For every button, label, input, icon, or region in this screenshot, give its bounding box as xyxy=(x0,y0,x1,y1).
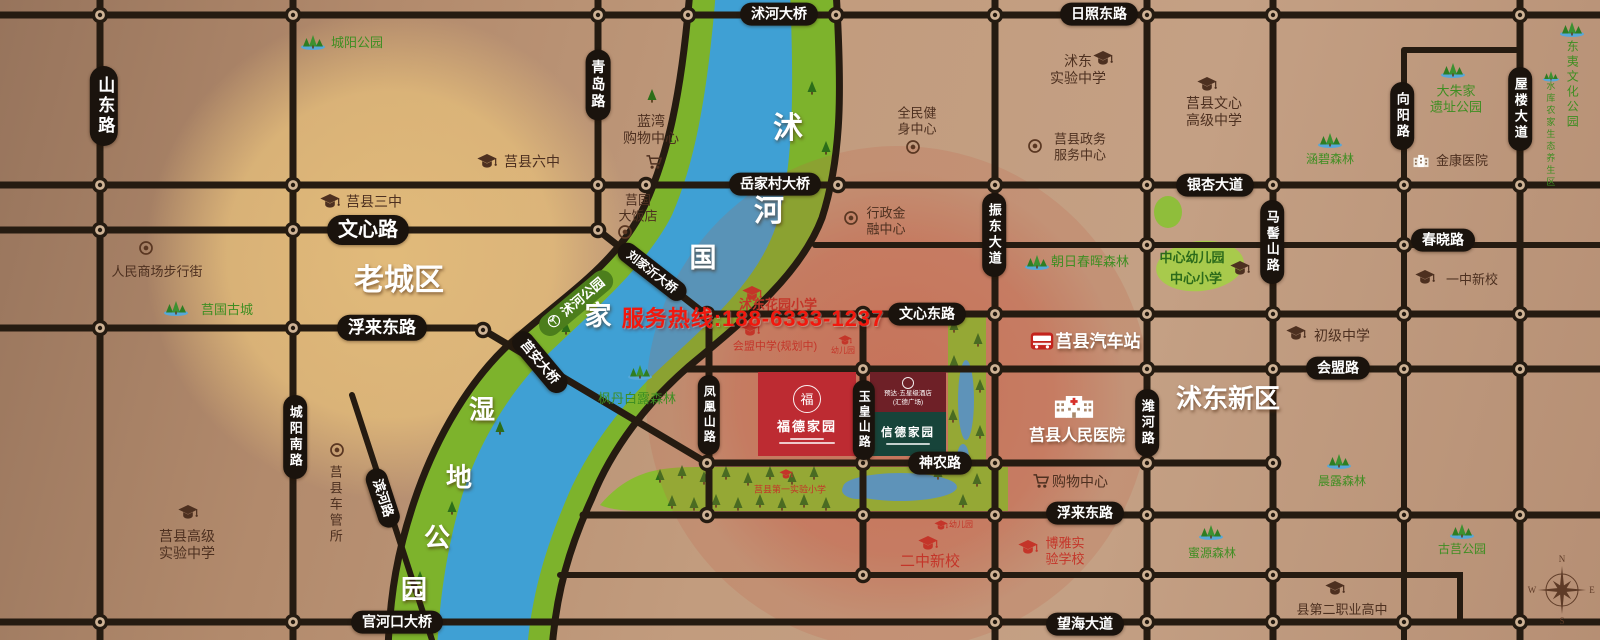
hanbi-forest-label-line0: 涵碧森林 xyxy=(1306,152,1354,166)
yizhong-new-campus-icon xyxy=(1415,269,1436,285)
vehicle-admin-office-label-line0: 莒县车管所 xyxy=(327,465,343,545)
chengyang-park-label-line0: 城阳公园 xyxy=(331,35,383,51)
south-mall-label: 购物中心 xyxy=(1052,474,1108,491)
road-label-huimeng-road: 会盟路 xyxy=(1306,357,1370,380)
road-label-huimeng-road-text: 会盟路 xyxy=(1317,360,1359,376)
kindergarten-south-label-line0: 幼儿园 xyxy=(949,520,973,530)
lanwan-mall-cart-icon xyxy=(646,154,663,170)
shudong-new-district-label-line0: 沭东新区 xyxy=(1176,383,1280,414)
boya-exp-school-label-line1: 验学校 xyxy=(1045,551,1084,567)
juguo-old-city-icon xyxy=(162,300,190,317)
yizhong-new-campus-label-line0: 一中新校 xyxy=(1446,272,1498,288)
road-label-chunxiao-road: 春晓路 xyxy=(1411,229,1475,252)
road-label-qingdao-road: 青岛路 xyxy=(586,50,611,121)
river-char-shu: 沭 xyxy=(773,111,803,147)
road-label-wanghai-avenue: 望海大道 xyxy=(1046,613,1124,636)
dazhujia-ruins-park-label: 大朱家遗址公园 xyxy=(1430,83,1482,114)
wenxin-high-school-icon xyxy=(1197,76,1218,92)
juxian-senior-exp-school-label: 莒县高级实验中学 xyxy=(159,528,215,562)
road-label-weihe-road-text: 潍河路 xyxy=(1140,399,1155,447)
people-hospital-label-line0: 莒县人民医院 xyxy=(1029,426,1125,445)
jinkang-hospital-icon xyxy=(1413,154,1430,168)
no2-vocational-school-label-line0: 县第二职业高中 xyxy=(1296,602,1387,618)
road-label-rizhao-east-road: 日照东路 xyxy=(1060,3,1138,26)
fengdan-forest-label-line0: 枫丹白露森林 xyxy=(598,391,676,407)
juxian-no6-school-icon xyxy=(477,153,498,169)
admin-finance-center-icon xyxy=(844,211,859,226)
wenxin-high-school-label-line0: 莒县文心 xyxy=(1186,95,1242,112)
bridge-label-shuhe: 沭河大桥 xyxy=(740,3,818,26)
fengdan-forest-icon xyxy=(626,364,654,381)
first-exp-primary-label: 莒县第一实验小学 xyxy=(754,485,826,496)
bridge-label-yuejiacun: 岳家村大桥 xyxy=(729,173,821,196)
river-char-jia: 家 xyxy=(585,300,612,332)
bridge-label-guanhekou-text: 官河口大桥 xyxy=(362,614,432,630)
road-label-majishan-road: 马髻山路 xyxy=(1260,200,1284,284)
chengyang-park-icon xyxy=(299,34,327,51)
old-town-area-label-line0: 老城区 xyxy=(354,263,444,299)
vehicle-admin-office-label: 莒县车管所 xyxy=(327,465,343,545)
junior-middle-school-label: 初级中学 xyxy=(1314,328,1370,345)
govt-service-center-label-line0: 莒县政务 xyxy=(1054,131,1106,147)
dazhujia-ruins-park-label-line1: 遗址公园 xyxy=(1430,99,1482,115)
road-label-shennong-road: 神农路 xyxy=(908,452,972,475)
bus-station-label-line0: 莒县汽车站 xyxy=(1056,332,1141,352)
river-char-di-line0: 地 xyxy=(446,462,472,493)
river-char-shi-line0: 湿 xyxy=(469,394,495,425)
wenxin-high-school-label-line1: 高级中学 xyxy=(1186,112,1242,129)
road-label-chengyang-south-road-text: 城阳南路 xyxy=(288,405,303,469)
shudong-exp-school-icon xyxy=(1093,50,1114,66)
fitness-center-label: 全民健身中心 xyxy=(897,105,936,136)
erzhong-new-campus-label: 二中新校 xyxy=(900,553,960,571)
kindergarten-north-label: 幼儿园 xyxy=(831,346,855,356)
road-label-wenxin-east-road: 文心东路 xyxy=(888,303,966,326)
juguo-hotel-label: 莒国大饭店 xyxy=(618,192,657,223)
road-label-weihe-road: 潍河路 xyxy=(1135,389,1159,457)
chenlu-forest-label-line0: 晨露森林 xyxy=(1318,474,1366,488)
central-school-cap-icon xyxy=(1230,260,1251,276)
river-char-he-line0: 河 xyxy=(754,194,784,230)
shudong-exp-school-label-line1: 实验中学 xyxy=(1050,70,1106,87)
road-label-fulai-east-road-east-text: 浮来东路 xyxy=(1057,505,1113,521)
miyuan-forest-label: 蜜源森林 xyxy=(1188,546,1236,560)
south-mall-cart-icon xyxy=(1033,473,1050,489)
road-label-yinxing-avenue: 银杏大道 xyxy=(1176,174,1254,197)
juxian-senior-exp-school-label-line1: 实验中学 xyxy=(159,545,215,562)
road-label-shandong-road: 山东路 xyxy=(90,66,118,146)
river-char-guo: 国 xyxy=(690,242,717,274)
road-label-yinxing-avenue-text: 银杏大道 xyxy=(1187,177,1243,193)
yizhong-new-campus-label: 一中新校 xyxy=(1446,272,1498,288)
kindergarten-north-label-line0: 幼儿园 xyxy=(831,346,855,356)
river-char-guo-line0: 国 xyxy=(690,242,717,274)
juxian-senior-exp-school-label-line0: 莒县高级 xyxy=(159,528,215,545)
bridge-label-juan-text: 莒安大桥 xyxy=(518,337,563,386)
road-label-fenghuangshan-road-text: 凤凰山路 xyxy=(702,385,716,445)
first-exp-primary-label-line0: 莒县第一实验小学 xyxy=(754,485,826,496)
road-label-shennong-road-text: 神农路 xyxy=(919,455,961,471)
dongyi-culture-park-label-line0: 东夷文化公园 xyxy=(1565,40,1579,130)
renmin-mall-icon xyxy=(139,241,154,256)
river-char-jia-line0: 家 xyxy=(585,300,612,332)
lanwan-mall-label-line1: 购物中心 xyxy=(623,130,679,147)
wenxin-high-school-label: 莒县文心高级中学 xyxy=(1186,95,1242,129)
erzhong-new-campus-label-line0: 二中新校 xyxy=(900,553,960,571)
juxian-no3-school-label-line0: 莒县三中 xyxy=(346,194,402,211)
central-kindergarten-label: 中心幼儿园 xyxy=(1159,250,1224,266)
guju-park-icon xyxy=(1448,523,1476,540)
road-label-yuhuangshan-road-text: 玉皇山路 xyxy=(857,390,871,450)
dazhujia-ruins-park-icon xyxy=(1439,62,1467,79)
road-label-fenghuangshan-road: 凤凰山路 xyxy=(698,375,720,455)
zhaori-forest-label: 朝日春晖森林 xyxy=(1051,254,1129,270)
bridge-label-shuhe-text: 沭河大桥 xyxy=(751,6,807,22)
road-label-wulou-avenue: 屋楼大道 xyxy=(1508,67,1532,151)
no2-vocational-school-icon xyxy=(1325,580,1346,596)
road-label-xiangyang-road: 向阳路 xyxy=(1390,82,1414,150)
fengdan-forest-label: 枫丹白露森林 xyxy=(598,391,676,407)
boya-exp-school-label: 博雅实验学校 xyxy=(1045,535,1084,566)
fitness-center-icon xyxy=(906,140,921,155)
juxian-no6-school-label: 莒县六中 xyxy=(504,154,560,171)
road-label-wenxin-road: 文心路 xyxy=(327,215,409,245)
bridge-label-yuejiacun-text: 岳家村大桥 xyxy=(740,176,810,192)
juxian-no6-school-label-line0: 莒县六中 xyxy=(504,154,560,171)
road-label-binhe-road-text: 滨河路 xyxy=(370,477,396,519)
bridge-label-liujiayi: 刘家沂大桥 xyxy=(613,239,690,306)
juguo-hotel-icon xyxy=(618,225,633,240)
road-label-chunxiao-road-text: 春晓路 xyxy=(1422,232,1464,248)
reservoir-farm-zone-label-line0: 水库农家生态养生区 xyxy=(1545,81,1556,189)
road-label-majishan-road-text: 马髻山路 xyxy=(1265,210,1280,274)
central-kindergarten-label-line0: 中心幼儿园 xyxy=(1159,250,1224,266)
kindergarten-south-label: 幼儿园 xyxy=(949,520,973,530)
juguo-old-city-label-line0: 莒国古城 xyxy=(201,302,253,318)
junior-middle-school-label-line0: 初级中学 xyxy=(1314,328,1370,345)
road-label-qingdao-road-text: 青岛路 xyxy=(590,60,606,111)
guju-park-label-line0: 古莒公园 xyxy=(1438,542,1486,556)
admin-finance-center-label-line0: 行政金 xyxy=(866,205,905,221)
lanwan-mall-label: 蓝湾购物中心 xyxy=(623,113,679,147)
lanwan-mall-label-line0: 蓝湾 xyxy=(623,113,679,130)
river-char-yuan-line0: 园 xyxy=(401,574,427,605)
juxian-no3-school-icon xyxy=(320,193,341,209)
location-map: N E S W 福 福德家园 预达·五星级酒店 (汇德广场) 信德家园 山东路青… xyxy=(0,0,1600,640)
first-exp-primary-icon xyxy=(776,466,797,482)
dongyi-culture-park-label: 东夷文化公园 xyxy=(1565,40,1579,130)
old-town-area-label: 老城区 xyxy=(354,263,444,299)
chenlu-forest-label: 晨露森林 xyxy=(1318,474,1366,488)
boya-exp-school-label-line0: 博雅实 xyxy=(1045,535,1084,551)
juxian-no3-school-label: 莒县三中 xyxy=(346,194,402,211)
central-primary-label-line0: 中心小学 xyxy=(1170,271,1222,287)
road-label-wenxin-east-road-text: 文心东路 xyxy=(899,306,955,322)
hanbi-forest-icon xyxy=(1316,132,1344,149)
river-char-gong-line0: 公 xyxy=(424,522,450,553)
service-hotline: 服务热线:188-6333-1237 xyxy=(622,301,885,333)
road-label-binhe-road: 滨河路 xyxy=(363,466,402,531)
huimeng-middle-school-label-line0: 会盟中学(规划中) xyxy=(733,340,817,353)
river-char-shi: 湿 xyxy=(469,394,495,425)
bridge-label-guanhekou: 官河口大桥 xyxy=(351,611,443,634)
admin-finance-center-label-line1: 融中心 xyxy=(866,221,905,237)
people-hospital-label: 莒县人民医院 xyxy=(1029,426,1125,445)
hanbi-forest-label: 涵碧森林 xyxy=(1306,152,1354,166)
chenlu-forest-icon xyxy=(1325,453,1353,470)
road-label-rizhao-east-road-text: 日照东路 xyxy=(1071,6,1127,22)
huimeng-middle-school-label: 会盟中学(规划中) xyxy=(733,340,817,353)
chengyang-park-label: 城阳公园 xyxy=(331,35,383,51)
bus-station-label: 莒县汽车站 xyxy=(1056,332,1141,352)
govt-service-center-icon xyxy=(1028,139,1043,154)
river-char-he: 河 xyxy=(754,194,784,230)
shudong-new-district-label: 沭东新区 xyxy=(1176,383,1280,414)
renmin-mall-label: 人民商场步行街 xyxy=(111,264,202,280)
dazhujia-ruins-park-label-line0: 大朱家 xyxy=(1430,83,1482,99)
river-char-shu-line0: 沭 xyxy=(773,111,803,147)
road-label-zhendong-avenue: 振东大道 xyxy=(982,193,1006,277)
guju-park-label: 古莒公园 xyxy=(1438,542,1486,556)
zhaori-forest-label-line0: 朝日春晖森林 xyxy=(1051,254,1129,270)
road-label-fulai-east-road-west-text: 浮来东路 xyxy=(348,318,416,337)
bus-station-icon xyxy=(1030,332,1054,350)
people-hospital-icon xyxy=(1054,393,1094,419)
jinkang-hospital-label: 金康医院 xyxy=(1436,153,1488,169)
vehicle-admin-office-icon xyxy=(330,443,345,458)
road-label-fulai-east-road-east: 浮来东路 xyxy=(1046,502,1124,525)
road-label-zhendong-avenue-text: 振东大道 xyxy=(987,203,1002,267)
renmin-mall-label-line0: 人民商场步行街 xyxy=(111,264,202,280)
junior-middle-school-icon xyxy=(1286,325,1307,341)
jinkang-hospital-label-line0: 金康医院 xyxy=(1436,153,1488,169)
juguo-old-city-label: 莒国古城 xyxy=(201,302,253,318)
no2-vocational-school-label: 县第二职业高中 xyxy=(1296,602,1387,618)
river-char-yuan: 园 xyxy=(401,574,427,605)
road-label-chengyang-south-road: 城阳南路 xyxy=(283,395,307,479)
road-label-xiangyang-road-text: 向阳路 xyxy=(1395,92,1410,140)
road-label-fulai-east-road-west: 浮来东路 xyxy=(337,315,427,341)
river-char-di: 地 xyxy=(446,462,472,493)
fitness-center-label-line1: 身中心 xyxy=(897,121,936,137)
south-mall-label-line0: 购物中心 xyxy=(1052,474,1108,491)
road-label-yuhuangshan-road: 玉皇山路 xyxy=(853,380,875,460)
dongyi-culture-park-icon xyxy=(1558,21,1586,38)
govt-service-center-label-line1: 服务中心 xyxy=(1054,147,1106,163)
road-label-wenxin-road-text: 文心路 xyxy=(338,219,398,241)
road-label-wanghai-avenue-text: 望海大道 xyxy=(1057,616,1113,632)
road-label-wulou-avenue-text: 屋楼大道 xyxy=(1513,77,1528,141)
admin-finance-center-label: 行政金融中心 xyxy=(866,205,905,236)
bridge-label-juan: 莒安大桥 xyxy=(508,327,572,398)
fitness-center-label-line0: 全民健 xyxy=(897,105,936,121)
road-label-shandong-road-text: 山东路 xyxy=(95,76,114,136)
juxian-senior-exp-school-icon xyxy=(178,504,199,520)
miyuan-forest-icon xyxy=(1197,524,1225,541)
juguo-hotel-label-line0: 莒国 xyxy=(618,192,657,208)
river-char-gong: 公 xyxy=(424,522,450,553)
juguo-hotel-label-line1: 大饭店 xyxy=(618,208,657,224)
zhaori-forest-icon xyxy=(1023,254,1051,271)
erzhong-new-campus-icon xyxy=(918,535,939,551)
miyuan-forest-label-line0: 蜜源森林 xyxy=(1188,546,1236,560)
reservoir-farm-zone-label: 水库农家生态养生区 xyxy=(1545,81,1556,189)
govt-service-center-label: 莒县政务服务中心 xyxy=(1054,131,1106,162)
central-primary-label: 中心小学 xyxy=(1170,271,1222,287)
bridge-label-liujiayi-text: 刘家沂大桥 xyxy=(624,248,680,296)
boya-exp-school-icon xyxy=(1018,539,1039,555)
